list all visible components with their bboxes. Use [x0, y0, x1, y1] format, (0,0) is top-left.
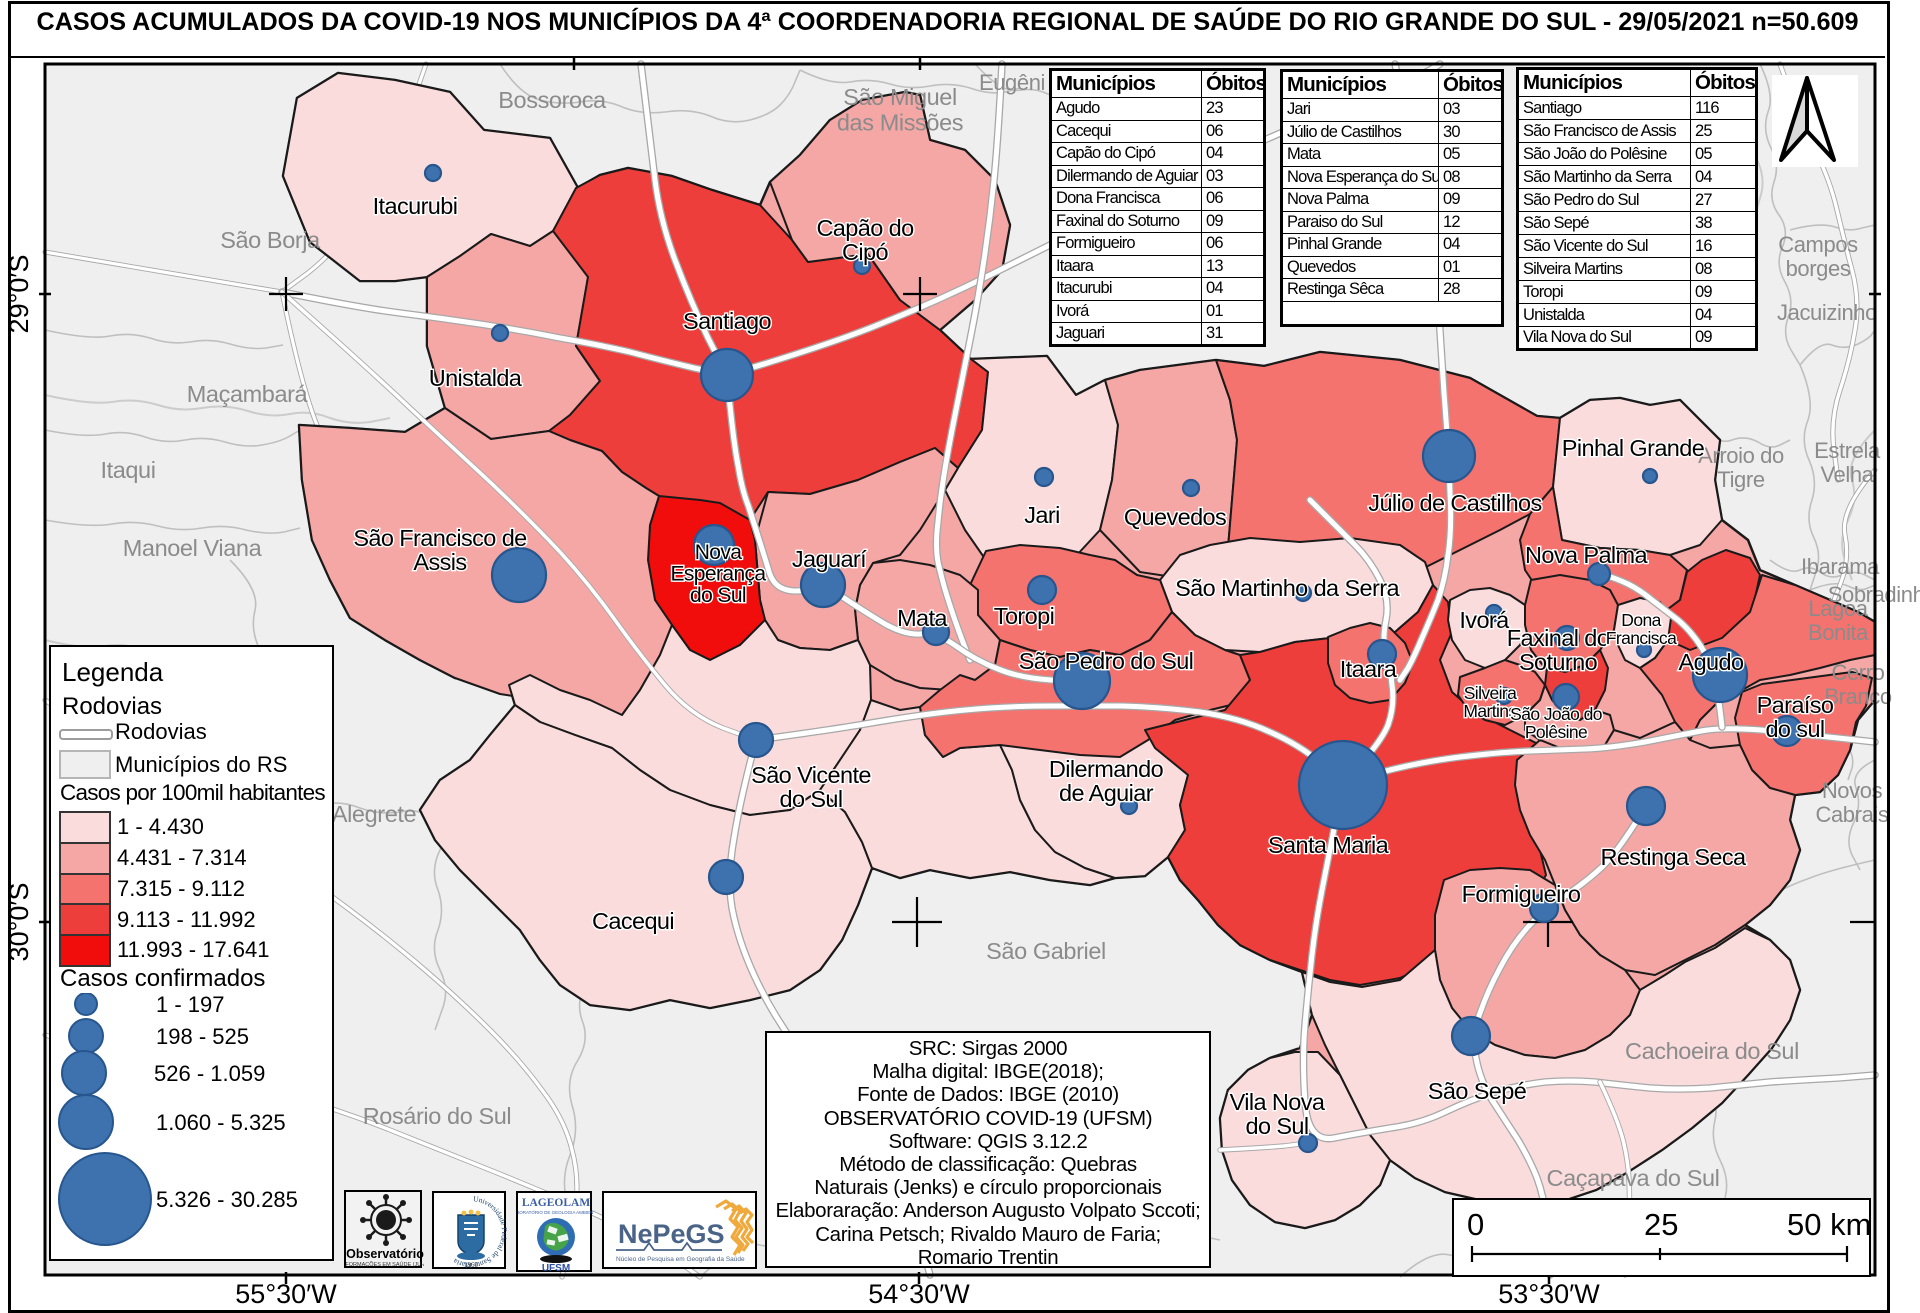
svg-text:LAGEOLAM: LAGEOLAM	[522, 1197, 591, 1209]
svg-text:Núcleo de Pesquisa em Geografi: Núcleo de Pesquisa em Geografia da Saúde	[616, 1256, 745, 1263]
svg-text:INFORMAÇÕES EM SAÚDE (JU-AI): INFORMAÇÕES EM SAÚDE (JU-AI)	[346, 1261, 424, 1268]
svg-text:LABORATÓRIO DE GEOLOGIA AMBIEN: LABORATÓRIO DE GEOLOGIA AMBIENTAL	[518, 1209, 594, 1215]
svg-text:1960: 1960	[464, 1261, 479, 1269]
svg-text:UFSM: UFSM	[542, 1263, 570, 1274]
svg-text:NePeGS: NePeGS	[618, 1219, 725, 1249]
svg-text:Observatório: Observatório	[346, 1247, 424, 1261]
